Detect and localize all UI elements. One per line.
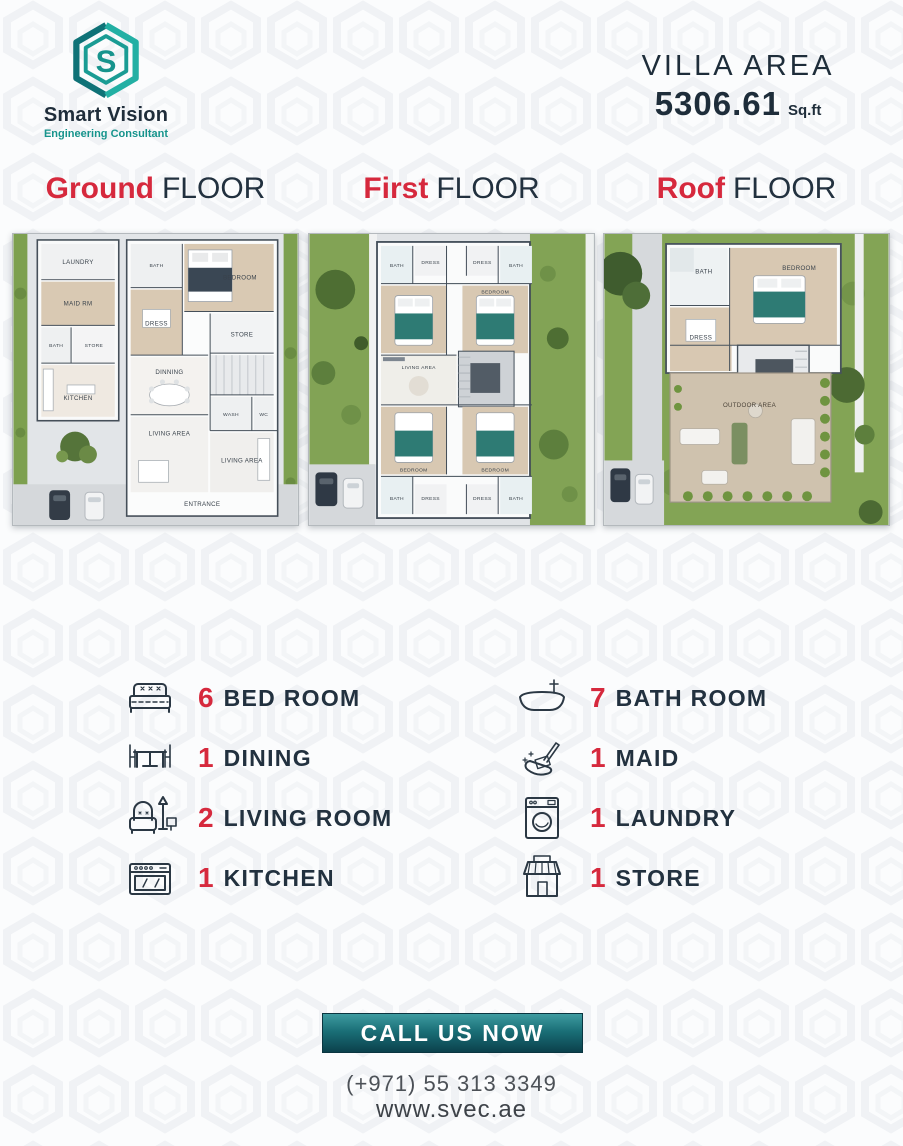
washing-machine-icon xyxy=(514,790,570,846)
stat-label: DINING xyxy=(224,745,312,772)
brand-name: Smart Vision xyxy=(40,104,172,127)
stat-label: BED ROOM xyxy=(224,685,361,712)
room-label: STORE xyxy=(231,331,254,338)
room-label: BATH xyxy=(390,263,404,269)
stat-label: LIVING ROOM xyxy=(224,805,393,832)
stove-icon xyxy=(122,850,178,906)
room-label: DRESS xyxy=(689,334,712,341)
room-label: OUTDOOR AREA xyxy=(723,402,777,409)
room-label: DRESS xyxy=(421,496,440,502)
room-label: WC xyxy=(259,412,268,418)
title-rest: FLOOR xyxy=(436,172,539,205)
room-label: ENTRANCE xyxy=(184,501,220,508)
stat-dining: 1 DINING xyxy=(122,732,467,784)
room-label: BATH xyxy=(149,263,163,269)
title-accent: Ground xyxy=(46,172,154,205)
stat-label: STORE xyxy=(616,865,701,892)
villa-area-block: VILLA AREA 5306.61Sq.ft xyxy=(608,50,868,123)
villa-area-value: 5306.61 xyxy=(655,85,781,122)
brand-tagline: Engineering Consultant xyxy=(40,128,172,140)
room-label: MAID RM xyxy=(64,301,93,308)
room-label: DRESS xyxy=(473,496,492,502)
storefront-icon xyxy=(514,850,570,906)
first-floor-title: FirstFLOOR xyxy=(308,172,595,206)
armchair-lamp-icon xyxy=(122,790,178,846)
room-label: LIVING AREA xyxy=(149,431,191,438)
stat-count: 1 xyxy=(198,742,214,774)
room-label: STORE xyxy=(85,343,104,349)
stats-left-column: 6 BED ROOM 1 DINING xyxy=(122,672,467,912)
roof-floor-plan: BATH BEDROOM DRESS OUTDOOR AREA xyxy=(603,233,890,526)
title-rest: FLOOR xyxy=(733,172,836,205)
stat-count: 1 xyxy=(590,862,606,894)
room-label: BEDROOM xyxy=(481,467,509,473)
phone-number: (+971) 55 313 3349 xyxy=(0,1071,903,1097)
room-label: BEDROOM xyxy=(481,290,509,296)
stat-maid: 1 MAID xyxy=(514,732,859,784)
room-label: DRESS xyxy=(421,260,440,266)
bathtub-icon xyxy=(514,670,570,726)
room-label: DRESS xyxy=(473,260,492,266)
stat-count: 1 xyxy=(590,802,606,834)
ground-floor-title: GroundFLOOR xyxy=(12,172,299,206)
dining-table-icon xyxy=(122,730,178,786)
room-label: LIVING AREA xyxy=(402,365,437,371)
room-label: BATH xyxy=(509,263,523,269)
room-label: LIVING AREA xyxy=(221,457,263,464)
stats-right-column: 7 BATH ROOM 1 MAID xyxy=(514,672,859,912)
room-label: WASH xyxy=(223,412,239,418)
room-label: BATH xyxy=(695,269,712,276)
room-label: LAUNDRY xyxy=(62,259,93,266)
stat-label: MAID xyxy=(616,745,680,772)
room-label: BEDROOM xyxy=(400,467,428,473)
call-us-now-button[interactable]: CALL US NOW xyxy=(322,1013,583,1053)
stat-count: 6 xyxy=(198,682,214,714)
title-accent: Roof xyxy=(657,172,725,205)
stat-count: 1 xyxy=(198,862,214,894)
stat-count: 2 xyxy=(198,802,214,834)
room-label: BATH xyxy=(390,496,404,502)
stat-label: BATH ROOM xyxy=(616,685,768,712)
room-label: BEDROOM xyxy=(223,275,257,282)
room-label: BATH xyxy=(49,343,63,349)
room-label: DRESS xyxy=(145,320,168,327)
stat-label: LAUNDRY xyxy=(616,805,737,832)
brand-logo: S Smart Vision Engineering Consultant xyxy=(40,14,172,140)
stat-bedrooms: 6 BED ROOM xyxy=(122,672,467,724)
stat-count: 7 xyxy=(590,682,606,714)
stat-count: 1 xyxy=(590,742,606,774)
room-label: KITCHEN xyxy=(64,395,93,402)
stat-bathrooms: 7 BATH ROOM xyxy=(514,672,859,724)
stat-store: 1 STORE xyxy=(514,852,859,904)
title-accent: First xyxy=(363,172,428,205)
villa-flyer: S Smart Vision Engineering Consultant VI… xyxy=(0,0,903,1146)
room-label: BEDROOM xyxy=(782,265,816,272)
bed-icon xyxy=(122,670,178,726)
ground-floor-plan: LAUNDRY MAID RM BATH STORE KITCHEN xyxy=(12,233,299,526)
title-rest: FLOOR xyxy=(162,172,265,205)
dustpan-icon xyxy=(514,730,570,786)
villa-area-label: VILLA AREA xyxy=(608,50,868,83)
smart-vision-logo-icon: S xyxy=(67,20,145,102)
stat-label: KITCHEN xyxy=(224,865,335,892)
stat-living-rooms: 2 LIVING ROOM xyxy=(122,792,467,844)
room-label: BATH xyxy=(509,496,523,502)
website-url: www.svec.ae xyxy=(0,1096,903,1124)
room-label: DINNING xyxy=(155,369,183,376)
villa-area-unit: Sq.ft xyxy=(788,102,821,119)
logo-monogram: S xyxy=(96,44,117,79)
first-floor-plan: BATH DRESS DRESS BATH BEDROOM LIVING ARE… xyxy=(308,233,595,526)
stat-kitchen: 1 KITCHEN xyxy=(122,852,467,904)
stat-laundry: 1 LAUNDRY xyxy=(514,792,859,844)
roof-floor-title: RoofFLOOR xyxy=(603,172,890,206)
